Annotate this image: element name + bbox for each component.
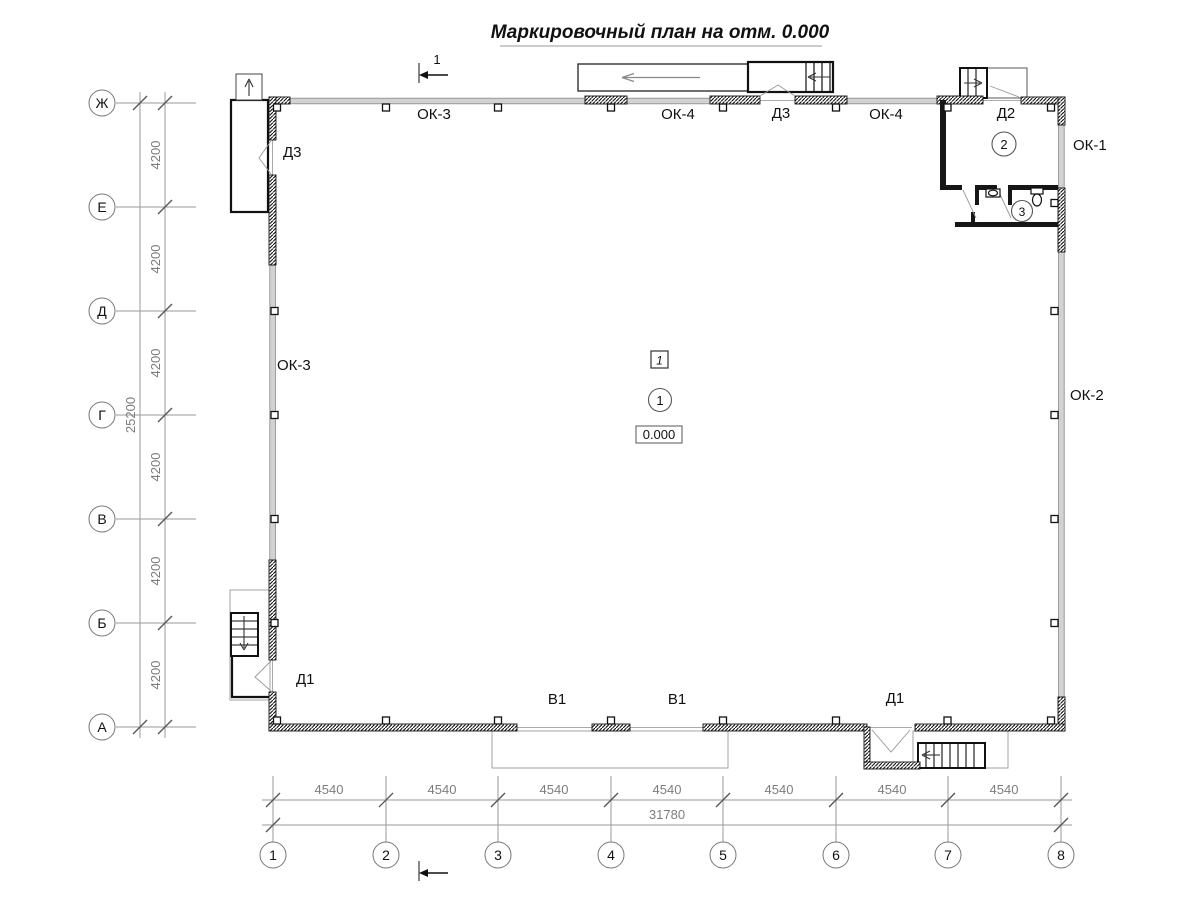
left-total-dimension: 25200: [123, 397, 138, 433]
bottom-total-dimension: 31780: [649, 807, 685, 822]
zone-tag-number: 1: [656, 354, 663, 368]
wall-opening-lines: [273, 101, 1022, 728]
svg-text:4200: 4200: [148, 245, 163, 274]
label-v1-left: В1: [548, 691, 566, 708]
axis-col-7: 7: [944, 847, 952, 863]
svg-text:4200: 4200: [148, 453, 163, 482]
svg-text:4540: 4540: [540, 782, 569, 797]
svg-text:4200: 4200: [148, 557, 163, 586]
room1-number: 1: [656, 393, 663, 408]
label-ok2: ОК-2: [1070, 387, 1104, 404]
room2-number: 2: [1000, 137, 1007, 152]
door-swings: [255, 85, 1019, 752]
column-markers: [271, 104, 1058, 724]
axis-col-8: 8: [1057, 847, 1065, 863]
axis-col-6: 6: [832, 847, 840, 863]
bottom-right-stair: [918, 743, 985, 768]
axis-row-zh: Ж: [96, 95, 109, 111]
svg-text:4200: 4200: [148, 141, 163, 170]
wc-door-swing-1: [963, 190, 976, 218]
window-ok1: [1059, 125, 1065, 188]
window-ok4-left: [627, 98, 710, 104]
axis-col-3: 3: [494, 847, 502, 863]
svg-text:4200: 4200: [148, 349, 163, 378]
section-mark-bottom: [419, 861, 448, 881]
label-ok3-top: ОК-3: [417, 106, 451, 123]
label-v1-right: В1: [668, 691, 686, 708]
axis-col-5: 5: [719, 847, 727, 863]
axis-col-1: 1: [269, 847, 277, 863]
label-d1-bottom: Д1: [886, 690, 905, 707]
axis-col-4: 4: [607, 847, 615, 863]
toilet-icon: [1031, 188, 1043, 194]
alcove-bottom-wall: [864, 762, 920, 769]
floor-plan-canvas: Маркировочный план на отм. 0.000 4200 42…: [0, 0, 1200, 900]
svg-text:4540: 4540: [990, 782, 1019, 797]
plan-title: Маркировочный план на отм. 0.000: [491, 22, 830, 43]
window-ok3-top: [290, 98, 585, 104]
room3-number: 3: [1019, 205, 1026, 219]
drawing-sheet: Маркировочный план на отм. 0.000 4200 42…: [0, 0, 1200, 900]
exterior-outlines: [230, 590, 1008, 768]
label-ok1: ОК-1: [1073, 137, 1107, 154]
door-d1-bottom-swing: [872, 730, 910, 752]
axis-row-b: Б: [97, 615, 106, 631]
axis-row-e: Е: [97, 199, 106, 215]
window-ok4-right: [847, 98, 937, 104]
svg-text:4540: 4540: [765, 782, 794, 797]
axis-row-a: А: [97, 719, 107, 735]
label-d3-left: Д3: [283, 144, 302, 161]
svg-text:4540: 4540: [878, 782, 907, 797]
label-d3-top: Д3: [772, 105, 791, 122]
top-right-porch: [960, 68, 1027, 98]
elevation-value: 0.000: [643, 427, 676, 442]
label-ok4-left: ОК-4: [661, 106, 695, 123]
door-d1-left-swing: [255, 661, 271, 691]
section-number: 1: [433, 52, 440, 67]
svg-text:4200: 4200: [148, 661, 163, 690]
axis-row-g: Г: [98, 407, 106, 423]
label-ok4-right: ОК-4: [869, 106, 903, 123]
top-left-porch: [231, 74, 268, 212]
loading-ramp: [578, 62, 833, 92]
label-ok3-left: ОК-3: [277, 357, 311, 374]
axis-col-2: 2: [382, 847, 390, 863]
bottom-dimension-values: 4540 4540 4540 4540 4540 4540 4540 31780: [315, 782, 1019, 822]
label-d2: Д2: [997, 105, 1016, 122]
section-mark-top: 1: [419, 52, 448, 83]
room-tags: 1 1 0.000 2 3: [636, 132, 1033, 443]
row-axis-bubbles: Ж Е Д Г В Б А: [89, 90, 115, 740]
svg-text:4540: 4540: [315, 782, 344, 797]
label-d1-left: Д1: [296, 671, 315, 688]
axis-row-v: В: [97, 511, 106, 527]
col-axis-bubbles: 1 2 3 4 5 6 7 8: [260, 842, 1074, 868]
axis-row-d: Д: [97, 303, 107, 319]
plan-labels: ОК-3 ОК-4 Д3 ОК-4 Д2 ОК-1 Д3 ОК-3 ОК-2 Д…: [277, 105, 1107, 708]
svg-text:4540: 4540: [653, 782, 682, 797]
bottom-apron-outline: [492, 731, 728, 768]
svg-text:4540: 4540: [428, 782, 457, 797]
window-ok2: [1059, 252, 1065, 697]
